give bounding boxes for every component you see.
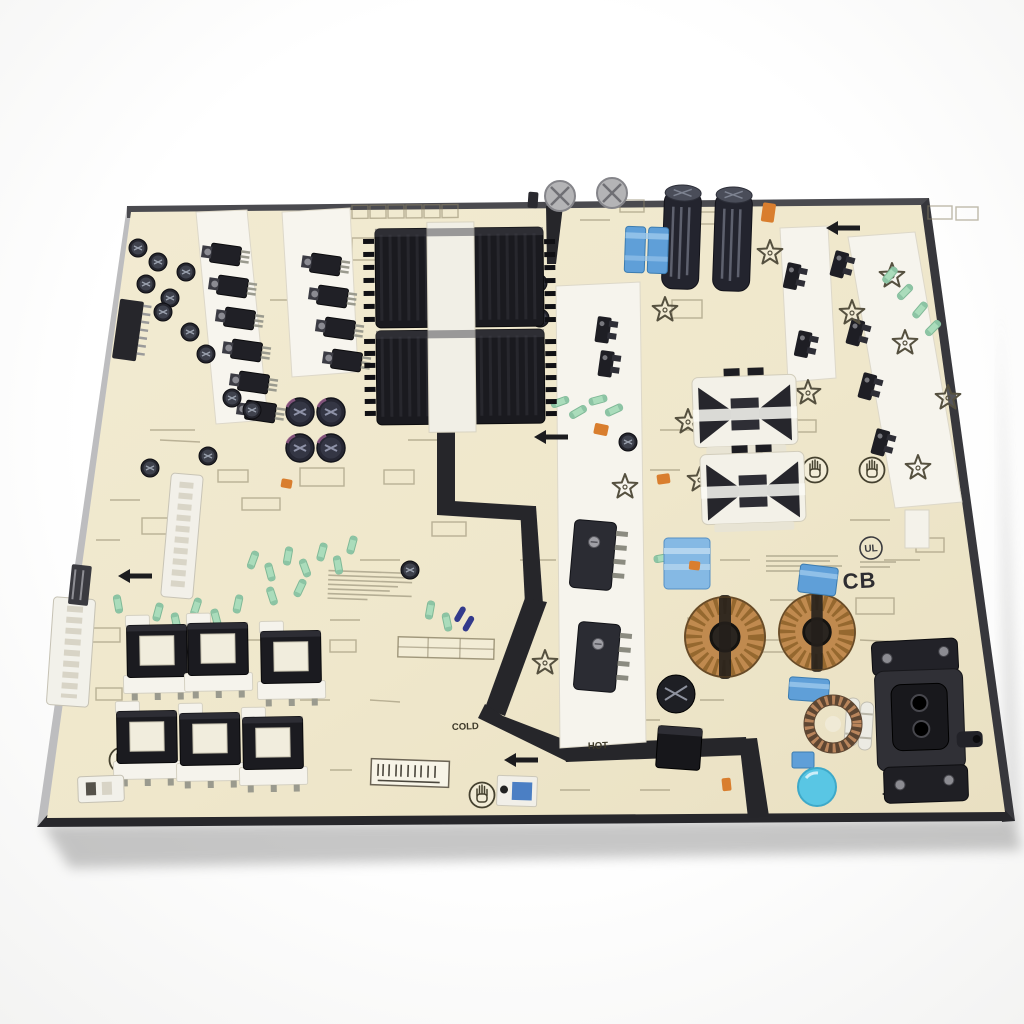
transformer-pin xyxy=(545,339,556,344)
transformer-pin xyxy=(363,252,374,257)
output-transformer xyxy=(183,612,252,698)
esd-hand-icon xyxy=(470,783,495,808)
electrolytic-capacitor-medium xyxy=(286,398,314,426)
transformer-pin xyxy=(546,399,557,404)
transformer-pin xyxy=(364,317,375,322)
transformer-pin xyxy=(546,411,557,416)
electrolytic-capacitor xyxy=(149,253,167,271)
transformer-pin xyxy=(545,351,556,356)
main-transformer xyxy=(699,443,806,533)
electrolytic-capacitor-medium xyxy=(317,398,345,426)
transformer-pin xyxy=(544,252,555,257)
transformer-pin xyxy=(363,265,374,270)
electrolytic-capacitor xyxy=(154,303,172,321)
serial-label xyxy=(371,759,450,788)
film-capacitor-blue xyxy=(797,564,838,596)
cb-label: CB xyxy=(842,567,877,594)
transformer-pin xyxy=(546,387,557,392)
ul-mark-text: UL xyxy=(864,543,878,555)
photo-canvas: CB HOT COLD UL xyxy=(0,0,1024,1024)
electrolytic-capacitor xyxy=(141,459,159,477)
transformer-pin xyxy=(364,351,375,356)
electrolytic-capacitor xyxy=(223,389,241,407)
output-transformer xyxy=(112,700,181,786)
electrolytic-capacitor xyxy=(243,401,261,419)
esd-hand-icon xyxy=(803,458,828,483)
output-transformer xyxy=(122,614,191,700)
model-info-table xyxy=(398,637,494,660)
transformer-pin xyxy=(545,291,556,296)
pcb-board: CB HOT COLD UL xyxy=(37,178,1015,827)
transformer-pin xyxy=(545,317,556,322)
transformer-pin xyxy=(544,278,555,283)
transformer-pin xyxy=(545,363,556,368)
output-transformer xyxy=(175,702,244,788)
film-capacitor-blue-small xyxy=(792,752,814,768)
transformer-pin xyxy=(364,291,375,296)
toroid-choke xyxy=(685,595,765,679)
electrolytic-cap-topview xyxy=(657,675,695,713)
transformer-pin xyxy=(364,375,375,380)
output-transformer xyxy=(256,620,325,706)
capacitor-top xyxy=(597,178,627,208)
bulk-capacitor xyxy=(712,186,753,291)
connector-pin-header xyxy=(68,564,92,606)
esd-hand-icon xyxy=(860,458,885,483)
transformer-pin xyxy=(363,239,374,244)
connector-white-lvds xyxy=(46,597,95,708)
toroid-choke xyxy=(779,592,855,672)
transformer-pin xyxy=(364,363,375,368)
electrolytic-capacitor xyxy=(401,561,419,579)
white-tape-band xyxy=(427,222,476,432)
electrolytic-capacitor xyxy=(181,323,199,341)
electrolytic-capacitor xyxy=(199,447,217,465)
electrolytic-capacitor-medium xyxy=(286,434,314,462)
hot-label: HOT xyxy=(588,740,609,752)
transformer-pin xyxy=(544,265,555,270)
cold-label: COLD xyxy=(452,721,479,733)
electrolytic-capacitor xyxy=(619,433,637,451)
electrolytic-capacitor xyxy=(197,345,215,363)
heatsink-strip xyxy=(780,226,836,382)
capacitor-top xyxy=(545,181,575,211)
main-transformer xyxy=(691,366,798,456)
electrolytic-capacitor xyxy=(177,263,195,281)
output-transformer xyxy=(238,706,307,792)
disc-capacitor-cyan xyxy=(798,768,836,806)
electrolytic-capacitor xyxy=(129,239,147,257)
transformer-pin xyxy=(365,399,376,404)
film-capacitor-lightblue xyxy=(664,538,710,589)
optocoupler-module xyxy=(496,775,537,806)
transformer-pin xyxy=(364,339,375,344)
electrolytic-capacitor xyxy=(137,275,155,293)
electrolytic-capacitor-medium xyxy=(317,434,345,462)
transformer-pin xyxy=(364,304,375,309)
transformer-pin xyxy=(365,411,376,416)
transformer-pin xyxy=(365,387,376,392)
relay-box xyxy=(656,726,703,771)
transformer-pin xyxy=(363,278,374,283)
transformer-pin xyxy=(544,239,555,244)
white-label-patch xyxy=(905,510,929,548)
pcb-photo: CB HOT COLD UL xyxy=(0,0,1024,1024)
transformer-pin xyxy=(545,375,556,380)
transformer-pin xyxy=(545,304,556,309)
connector-white-small xyxy=(78,775,125,803)
